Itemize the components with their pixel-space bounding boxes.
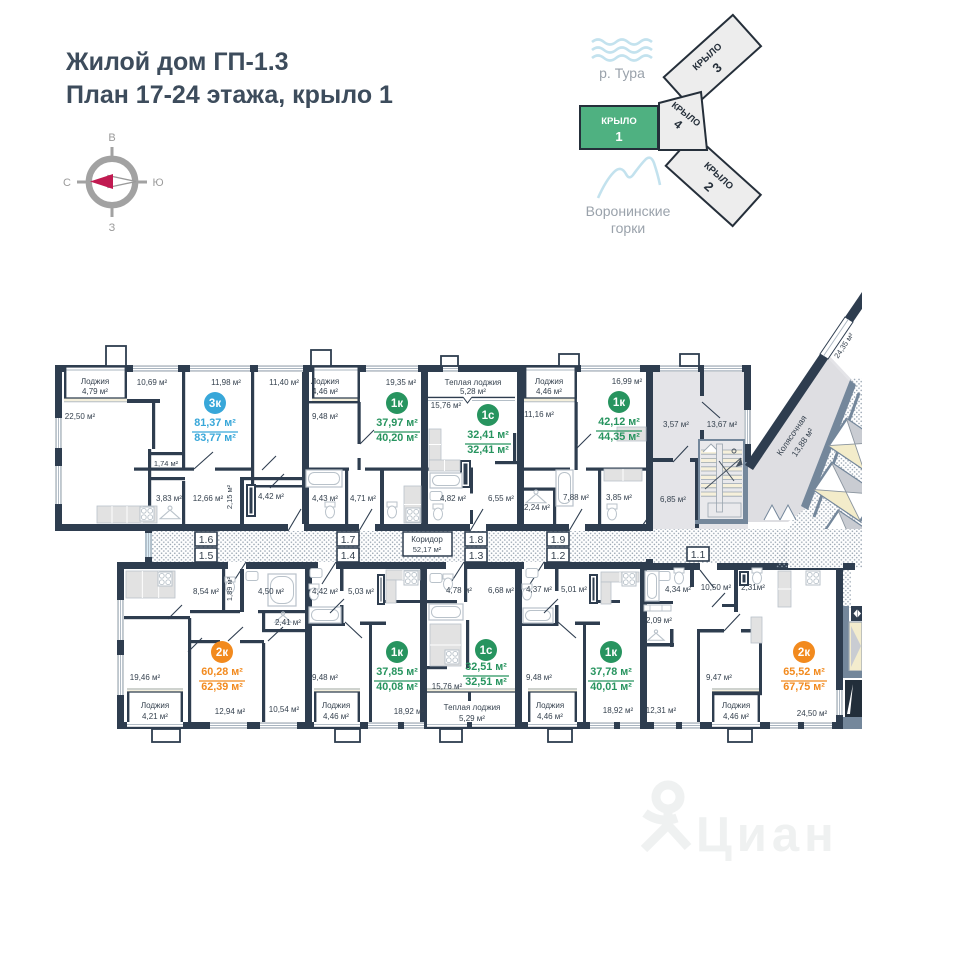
svg-text:З: З xyxy=(109,222,116,234)
svg-text:4,46 м²: 4,46 м² xyxy=(312,387,338,396)
svg-text:32,51 м²: 32,51 м² xyxy=(465,676,507,688)
svg-text:1к: 1к xyxy=(391,398,403,410)
svg-text:Лоджия: Лоджия xyxy=(536,701,564,710)
svg-text:3к: 3к xyxy=(209,398,221,410)
svg-text:9,48 м²: 9,48 м² xyxy=(526,673,552,682)
svg-text:4,79 м²: 4,79 м² xyxy=(82,387,108,396)
svg-text:12,31 м²: 12,31 м² xyxy=(646,706,677,715)
svg-text:4,37 м²: 4,37 м² xyxy=(526,585,552,594)
svg-text:Теплая лоджия: Теплая лоджия xyxy=(444,703,501,712)
svg-text:В: В xyxy=(108,132,115,144)
svg-text:10,50 м²: 10,50 м² xyxy=(701,583,732,592)
svg-text:1: 1 xyxy=(615,129,622,144)
svg-text:32,41 м²: 32,41 м² xyxy=(467,429,509,441)
svg-text:Лоджия: Лоджия xyxy=(141,701,169,710)
svg-text:р. Тура: р. Тура xyxy=(599,65,645,81)
svg-text:37,97 м²: 37,97 м² xyxy=(376,417,418,429)
svg-text:1с: 1с xyxy=(480,645,493,657)
svg-text:40,08 м²: 40,08 м² xyxy=(376,681,418,693)
svg-text:9,48 м²: 9,48 м² xyxy=(312,412,338,421)
svg-text:60,28 м²: 60,28 м² xyxy=(201,666,243,678)
svg-text:5,01 м²: 5,01 м² xyxy=(561,585,587,594)
svg-text:4,21 м²: 4,21 м² xyxy=(142,712,168,721)
svg-text:КРЫЛО: КРЫЛО xyxy=(601,116,637,127)
svg-text:62,39 м²: 62,39 м² xyxy=(201,681,243,693)
svg-text:5,03 м²: 5,03 м² xyxy=(348,587,374,596)
svg-text:10,54 м²: 10,54 м² xyxy=(269,705,300,714)
svg-text:10,69 м²: 10,69 м² xyxy=(137,378,168,387)
svg-text:9,47 м²: 9,47 м² xyxy=(706,673,732,682)
svg-text:4,46 м²: 4,46 м² xyxy=(537,712,563,721)
svg-text:4,71 м²: 4,71 м² xyxy=(350,494,376,503)
svg-text:Циан: Циан xyxy=(696,808,839,862)
svg-text:32,41 м²: 32,41 м² xyxy=(467,444,509,456)
svg-text:1.7: 1.7 xyxy=(341,534,356,546)
svg-text:2,31м²: 2,31м² xyxy=(741,583,765,592)
svg-text:52,17 м²: 52,17 м² xyxy=(413,545,442,554)
svg-text:1,89 м²: 1,89 м² xyxy=(225,576,234,601)
svg-text:1к: 1к xyxy=(613,397,625,409)
svg-text:1,74 м²: 1,74 м² xyxy=(154,459,179,468)
svg-text:Коридор: Коридор xyxy=(411,535,443,544)
svg-text:3,57 м²: 3,57 м² xyxy=(663,420,689,429)
svg-text:Воронинские: Воронинские xyxy=(586,203,671,219)
svg-text:19,35 м²: 19,35 м² xyxy=(386,378,417,387)
svg-text:4,34 м²: 4,34 м² xyxy=(665,585,691,594)
svg-text:44,35 м²: 44,35 м² xyxy=(598,431,640,443)
svg-text:11,98 м²: 11,98 м² xyxy=(211,378,241,387)
svg-text:С: С xyxy=(63,177,71,189)
svg-text:37,78 м²: 37,78 м² xyxy=(590,666,632,678)
svg-text:19,46 м²: 19,46 м² xyxy=(130,673,161,682)
svg-text:3,85 м²: 3,85 м² xyxy=(606,493,632,502)
svg-text:40,20 м²: 40,20 м² xyxy=(376,432,418,444)
svg-text:1.4: 1.4 xyxy=(341,550,356,562)
svg-text:11,16 м²: 11,16 м² xyxy=(524,410,554,419)
svg-text:Жилой дом ГП-1.3: Жилой дом ГП-1.3 xyxy=(65,48,289,76)
svg-text:67,75 м²: 67,75 м² xyxy=(783,681,825,693)
svg-text:18,92 м²: 18,92 м² xyxy=(394,707,425,716)
svg-text:2,15 м²: 2,15 м² xyxy=(225,484,234,509)
svg-text:1.3: 1.3 xyxy=(469,550,484,562)
svg-text:18,92 м²: 18,92 м² xyxy=(603,706,634,715)
svg-text:83,77 м²: 83,77 м² xyxy=(194,432,236,444)
svg-text:42,12 м²: 42,12 м² xyxy=(598,416,640,428)
svg-text:1.6: 1.6 xyxy=(199,534,214,546)
svg-text:11,40 м²: 11,40 м² xyxy=(269,378,299,387)
svg-text:5,29 м²: 5,29 м² xyxy=(459,714,485,723)
svg-text:1.8: 1.8 xyxy=(469,534,484,546)
svg-text:Ю: Ю xyxy=(152,177,163,189)
svg-text:12,94 м²: 12,94 м² xyxy=(215,707,246,716)
svg-text:1к: 1к xyxy=(605,647,617,659)
svg-text:8,54 м²: 8,54 м² xyxy=(193,587,219,596)
svg-text:горки: горки xyxy=(611,220,645,236)
svg-text:2к: 2к xyxy=(798,647,810,659)
svg-text:1.2: 1.2 xyxy=(551,550,566,562)
svg-text:12,66 м²: 12,66 м² xyxy=(193,494,224,503)
svg-text:1к: 1к xyxy=(391,647,403,659)
svg-text:16,99 м²: 16,99 м² xyxy=(612,377,643,386)
svg-text:План 17-24 этажа, крыло 1: План 17-24 этажа, крыло 1 xyxy=(66,81,393,109)
svg-text:3,83 м²: 3,83 м² xyxy=(156,494,182,503)
svg-text:7,88 м²: 7,88 м² xyxy=(563,493,589,502)
svg-text:4,46 м²: 4,46 м² xyxy=(536,387,562,396)
svg-text:Лоджия: Лоджия xyxy=(722,701,750,710)
svg-text:24,50 м²: 24,50 м² xyxy=(797,709,828,718)
svg-text:65,52 м²: 65,52 м² xyxy=(783,666,825,678)
svg-text:32,51 м²: 32,51 м² xyxy=(465,661,507,673)
svg-text:5,28 м²: 5,28 м² xyxy=(460,387,486,396)
svg-text:4,82 м²: 4,82 м² xyxy=(440,494,466,503)
svg-text:4,50 м²: 4,50 м² xyxy=(258,587,284,596)
svg-text:40,01 м²: 40,01 м² xyxy=(590,681,632,693)
svg-text:1.9: 1.9 xyxy=(551,534,566,546)
svg-text:1с: 1с xyxy=(482,410,495,422)
svg-text:13,67 м²: 13,67 м² xyxy=(707,420,738,429)
svg-text:Лоджия: Лоджия xyxy=(322,701,350,710)
svg-text:4,42 м²: 4,42 м² xyxy=(258,492,284,501)
svg-text:6,55 м²: 6,55 м² xyxy=(488,494,514,503)
svg-text:2,41 м²: 2,41 м² xyxy=(275,618,301,627)
svg-text:Лоджия: Лоджия xyxy=(535,377,563,386)
svg-text:2,09 м²: 2,09 м² xyxy=(646,616,672,625)
svg-text:81,37 м²: 81,37 м² xyxy=(194,417,236,429)
svg-text:9,48 м²: 9,48 м² xyxy=(312,673,338,682)
svg-text:4,43 м²: 4,43 м² xyxy=(312,494,338,503)
svg-text:4,46 м²: 4,46 м² xyxy=(723,712,749,721)
svg-text:37,85 м²: 37,85 м² xyxy=(376,666,418,678)
svg-text:Лоджия: Лоджия xyxy=(81,377,109,386)
svg-text:4,78 м²: 4,78 м² xyxy=(446,586,472,595)
svg-text:2к: 2к xyxy=(216,647,228,659)
svg-text:15,76 м²: 15,76 м² xyxy=(432,682,463,691)
svg-text:1.1: 1.1 xyxy=(691,549,706,561)
svg-text:6,68 м²: 6,68 м² xyxy=(488,586,514,595)
svg-text:6,85 м²: 6,85 м² xyxy=(660,495,686,504)
svg-text:Теплая лоджия: Теплая лоджия xyxy=(445,378,502,387)
svg-text:15,76 м²: 15,76 м² xyxy=(431,401,462,410)
svg-text:2,24 м²: 2,24 м² xyxy=(524,503,550,512)
svg-text:4,46 м²: 4,46 м² xyxy=(323,712,349,721)
svg-text:1.5: 1.5 xyxy=(199,550,214,562)
svg-text:4,42 м²: 4,42 м² xyxy=(312,587,338,596)
svg-text:22,50 м²: 22,50 м² xyxy=(65,412,96,421)
svg-text:Лоджия: Лоджия xyxy=(311,377,339,386)
